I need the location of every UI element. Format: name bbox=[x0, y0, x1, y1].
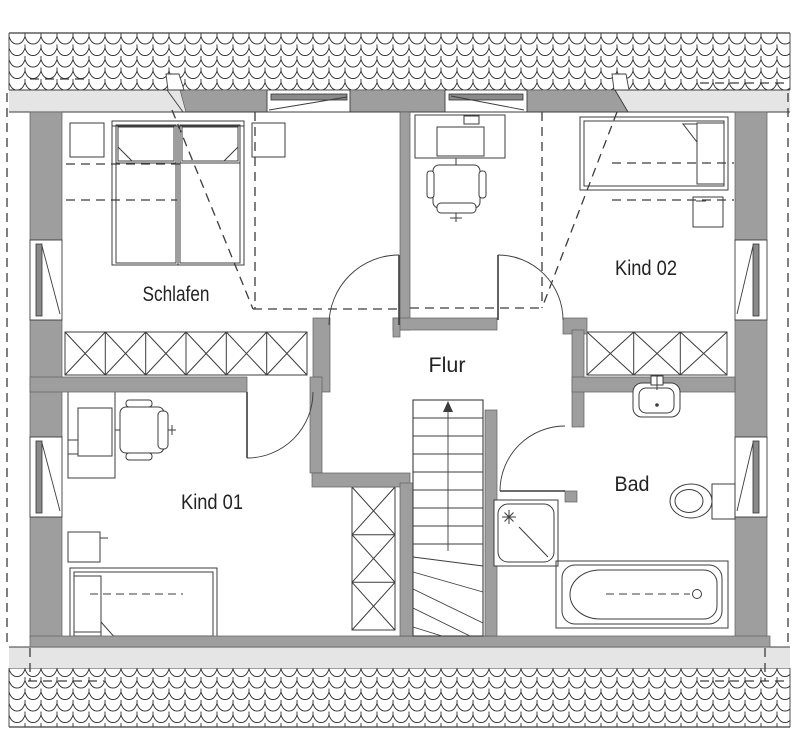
alcove-desk-group bbox=[415, 115, 505, 222]
door-kind01 bbox=[247, 392, 313, 458]
wardrobe-schlafen bbox=[65, 332, 307, 375]
monitor bbox=[78, 408, 112, 456]
door-schlafen bbox=[329, 255, 399, 325]
shower bbox=[494, 500, 558, 566]
dormer-window-left bbox=[267, 90, 350, 112]
nightstand bbox=[68, 532, 100, 562]
single-bed-symbol bbox=[580, 117, 728, 190]
window-kind02-east bbox=[735, 240, 767, 320]
room-label-kind01: Kind 01 bbox=[181, 491, 243, 514]
wall-stair-west bbox=[400, 483, 413, 636]
door-bad bbox=[500, 426, 565, 491]
dormer-cheek-right bbox=[612, 74, 629, 90]
dormer-window-right bbox=[445, 90, 527, 112]
window-kind01-west bbox=[30, 437, 62, 517]
roof-tiles-top bbox=[9, 33, 790, 90]
pillow bbox=[74, 576, 101, 632]
pillow bbox=[697, 123, 724, 184]
eaves-band-bottom bbox=[9, 647, 790, 668]
room-kind02-furniture bbox=[580, 117, 728, 227]
toilet bbox=[670, 484, 735, 519]
room-schlafen-furniture bbox=[70, 121, 285, 265]
office-chair bbox=[427, 158, 486, 222]
wardrobe-kind01 bbox=[352, 487, 395, 630]
double-bed-symbol bbox=[112, 121, 244, 265]
door-kind02 bbox=[498, 255, 563, 320]
nightstand bbox=[70, 123, 104, 157]
nightstand bbox=[252, 123, 285, 157]
room-label-flur: Flur bbox=[429, 354, 466, 377]
wall-schlafen-kind01 bbox=[30, 377, 247, 392]
single-bed-symbol bbox=[70, 568, 217, 640]
floor-plan-page: Schlafen Kind 02 Flur Kind 01 Bad bbox=[0, 0, 800, 750]
room-label-schlafen: Schlafen bbox=[143, 283, 210, 306]
floor-plan-drawing: Schlafen Kind 02 Flur Kind 01 Bad bbox=[0, 0, 800, 750]
stairs bbox=[413, 400, 483, 636]
window-bad-east bbox=[735, 437, 767, 517]
wall-schlafen-alcove bbox=[400, 112, 410, 330]
room-label-bad: Bad bbox=[615, 473, 650, 496]
wall-alcove-south bbox=[393, 318, 497, 330]
wardrobe-kind02 bbox=[587, 332, 727, 375]
office-chair bbox=[115, 400, 176, 460]
window-schlafen-west bbox=[30, 240, 62, 320]
room-label-kind02: Kind 02 bbox=[615, 257, 677, 280]
roof-tiles-bottom bbox=[9, 668, 790, 727]
room-kind01-furniture bbox=[68, 390, 217, 640]
monitor bbox=[437, 127, 484, 156]
wall-kind01-flur bbox=[310, 377, 322, 473]
bathtub bbox=[556, 561, 728, 628]
